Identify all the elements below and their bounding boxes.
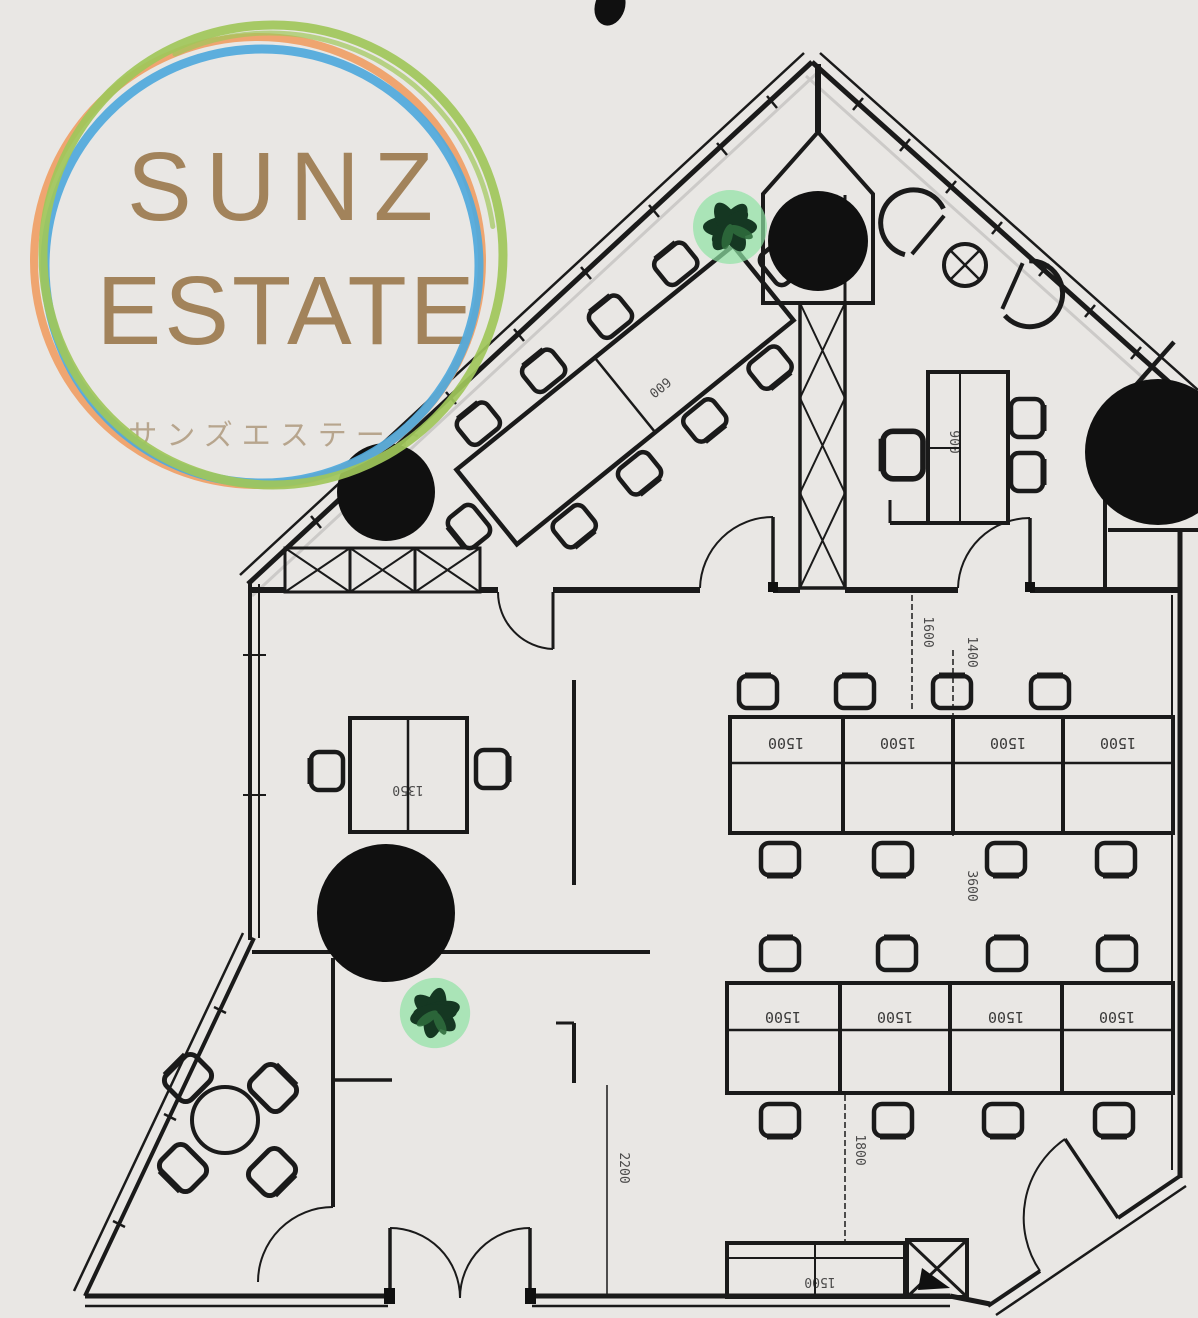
desk-label: 1500	[1099, 1008, 1135, 1026]
desk-label: 1500	[877, 1008, 913, 1026]
column	[337, 443, 435, 541]
door-arc-middle-room	[700, 517, 778, 592]
door-arc-right-room	[958, 518, 1035, 592]
plant-icon	[693, 190, 767, 264]
desk-bank-2: 1500 1500 1500 1500	[727, 983, 1173, 1093]
dimension-label: 1800	[852, 1134, 867, 1165]
bottom-cabinets: 1500	[727, 1240, 967, 1297]
equipment-box	[907, 1240, 967, 1297]
cabinet-label: 1500	[804, 1274, 835, 1289]
top-right-room-desk: 900	[882, 372, 1043, 523]
column	[317, 844, 455, 982]
desk-depth-label: 900	[946, 430, 961, 453]
dimension-label: 1400	[964, 636, 979, 667]
desk-label: 1500	[765, 1008, 801, 1026]
desk-label: 1500	[990, 734, 1026, 752]
desk-bank-1: 1500 1500 1500 1500	[730, 717, 1173, 833]
floor-plan-page: SUNZ ESTATE サンズエステート	[0, 0, 1198, 1318]
door-arc-bottom-left-room	[258, 1207, 333, 1282]
desk-pair: 1350	[311, 718, 509, 832]
hatched-wall-left	[285, 548, 480, 592]
dimension-label: 1600	[920, 616, 935, 647]
desk-label: 1500	[988, 1008, 1024, 1026]
column	[1085, 379, 1198, 525]
edge-mark	[590, 0, 631, 30]
column	[768, 191, 868, 291]
dimension-label: 3600	[964, 870, 979, 901]
dimension-label: 2200	[616, 1152, 631, 1183]
double-door	[384, 1228, 536, 1304]
conference-dimension-label: 600	[646, 374, 674, 400]
dimension-lines: 1600 1400 3600 1800 2200	[607, 595, 979, 1296]
desk-label: 1500	[1100, 734, 1136, 752]
door-arc-left-room	[498, 592, 553, 649]
desk-label: 1500	[768, 734, 804, 752]
desk-label: 1500	[880, 734, 916, 752]
corner-door	[1024, 1139, 1118, 1271]
floor-plan-drawing: 600 900	[0, 0, 1198, 1318]
desk-pair-label: 1350	[392, 782, 423, 797]
